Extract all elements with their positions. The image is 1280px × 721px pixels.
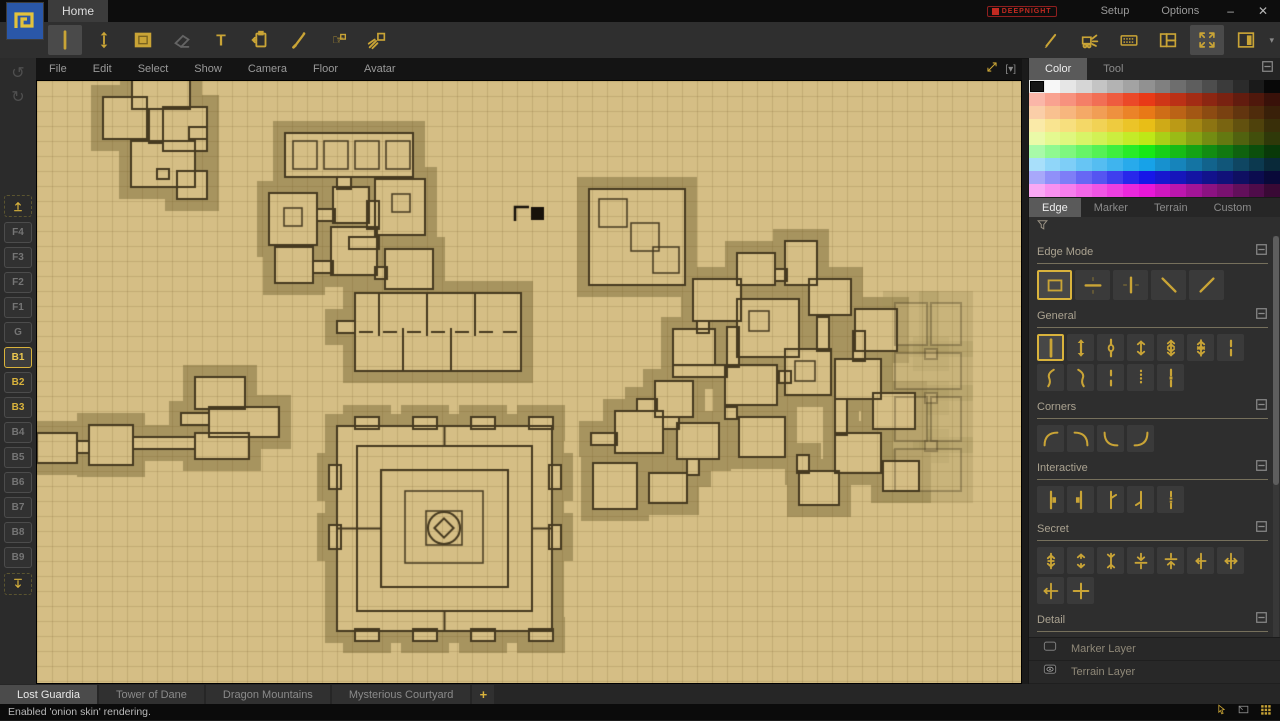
palette-swatch[interactable] (1170, 93, 1186, 106)
add-floor-above-button[interactable] (4, 195, 32, 217)
palette-swatch[interactable] (1170, 145, 1186, 158)
palette-swatch[interactable] (1186, 106, 1202, 119)
filter-row (1029, 217, 1280, 236)
palette-swatch[interactable] (1076, 106, 1092, 119)
collapse-section-icon[interactable] (1255, 611, 1268, 629)
collapse-panel-icon[interactable] (1261, 60, 1274, 78)
wall-tool[interactable] (48, 25, 82, 55)
palette-swatch[interactable] (1107, 93, 1123, 106)
menu-camera[interactable]: Camera (235, 63, 300, 75)
palette-swatch[interactable] (1107, 184, 1123, 197)
category-tabs: EdgeMarkerTerrainCustom (1029, 197, 1280, 217)
secret-cross-button[interactable] (1067, 577, 1094, 604)
palette-swatch[interactable] (1139, 106, 1155, 119)
palette-swatch[interactable] (1233, 80, 1249, 93)
section-buttons (1037, 270, 1268, 300)
palette-swatch[interactable] (1092, 119, 1108, 132)
palette-swatch[interactable] (1170, 171, 1186, 184)
palette-swatch[interactable] (1139, 158, 1155, 171)
arc-top-left-button[interactable] (1037, 425, 1064, 452)
shortcuts-tool[interactable] (1112, 25, 1146, 55)
palette-swatch[interactable] (1029, 119, 1045, 132)
marker-layer-toggle[interactable]: Marker Layer (1029, 638, 1280, 661)
section-corners: Corners (1037, 398, 1272, 452)
secret-arrows-both-line-icon (1220, 550, 1242, 572)
tab-color[interactable]: Color (1029, 58, 1087, 80)
palette-swatch[interactable] (1233, 132, 1249, 145)
palette-swatch[interactable] (1092, 80, 1108, 93)
palette-swatch[interactable] (1264, 106, 1280, 119)
floor-button-f1[interactable]: F1 (4, 297, 32, 318)
palette-swatch[interactable] (1060, 158, 1076, 171)
palette-swatch[interactable] (1123, 119, 1139, 132)
palette-swatch[interactable] (1045, 80, 1061, 93)
palette-swatch[interactable] (1123, 184, 1139, 197)
collapse-section-icon[interactable] (1255, 307, 1268, 325)
palette-swatch[interactable] (1264, 184, 1280, 197)
tab-terrain[interactable]: Terrain (1141, 198, 1201, 217)
palette-swatch[interactable] (1264, 145, 1280, 158)
door-double-button[interactable] (1157, 486, 1184, 513)
palette-swatch[interactable] (1155, 119, 1171, 132)
wall-double-arrows-icon (1160, 337, 1182, 359)
palette-swatch[interactable] (1155, 132, 1171, 145)
palette-swatch[interactable] (1060, 106, 1076, 119)
palette-swatch[interactable] (1139, 93, 1155, 106)
palette-swatch[interactable] (1202, 119, 1218, 132)
palette-swatch[interactable] (1233, 93, 1249, 106)
floor-button-b4[interactable]: B4 (4, 422, 32, 443)
palette-swatch[interactable] (1233, 171, 1249, 184)
vline-icon (54, 29, 76, 51)
expand-view-icon[interactable] (985, 60, 999, 79)
palette-swatch[interactable] (1249, 106, 1265, 119)
palette-swatch[interactable] (1107, 80, 1123, 93)
palette-swatch[interactable] (1155, 80, 1171, 93)
side-panel-tool[interactable] (1229, 25, 1263, 55)
undo-icon[interactable]: ↺ (11, 66, 24, 82)
palette-swatch[interactable] (1092, 171, 1108, 184)
palette-swatch[interactable] (1233, 158, 1249, 171)
eraser-tool[interactable] (165, 25, 199, 55)
palette-swatch[interactable] (1107, 132, 1123, 145)
palette-swatch[interactable] (1092, 158, 1108, 171)
palette-swatch[interactable] (1233, 184, 1249, 197)
collapse-section-icon[interactable] (1255, 459, 1268, 477)
palette-swatch[interactable] (1139, 119, 1155, 132)
door-left-icon (1070, 489, 1092, 511)
mode-diagonal-forward-icon (1196, 274, 1218, 296)
palette-swatch[interactable] (1186, 158, 1202, 171)
palette-swatch[interactable] (1092, 145, 1108, 158)
secret-arrows-vertical-button[interactable] (1037, 547, 1064, 574)
filter-icon[interactable] (1035, 217, 1050, 237)
floor-button-b1[interactable]: B1 (4, 347, 32, 368)
varrows-icon (93, 29, 115, 51)
secret-arrow-left-cross-icon (1040, 580, 1062, 602)
fullscreen-tool[interactable] (1190, 25, 1224, 55)
menu-floor[interactable]: Floor (300, 63, 351, 75)
secret-arrow-left-cross-button[interactable] (1037, 577, 1064, 604)
bulldozer-icon (1079, 29, 1101, 51)
maze-logo-icon (10, 6, 40, 36)
wall-dashed-short-button[interactable] (1097, 364, 1124, 391)
palette-swatch[interactable] (1249, 158, 1265, 171)
floor-button-f4[interactable]: F4 (4, 222, 32, 243)
map-tab-dragon-mountains[interactable]: Dragon Mountains (206, 685, 330, 704)
palette-swatch[interactable] (1249, 184, 1265, 197)
section-buttons (1037, 486, 1268, 513)
palette-swatch[interactable] (1107, 119, 1123, 132)
palette-swatch[interactable] (1060, 119, 1076, 132)
layer-label: Terrain Layer (1071, 666, 1135, 678)
section-header: Secret (1037, 520, 1268, 541)
fullscreen-icon (1196, 29, 1218, 51)
menu-file[interactable]: File (36, 63, 80, 75)
palette-swatch[interactable] (1217, 171, 1233, 184)
secret-arrows-left-line-icon (1190, 550, 1212, 572)
palette-swatch[interactable] (1170, 132, 1186, 145)
menu-edit[interactable]: Edit (80, 63, 125, 75)
stamp-tool[interactable] (243, 25, 277, 55)
panels-icon (1157, 29, 1179, 51)
door-swing-right-icon (1100, 489, 1122, 511)
section-edge-mode: Edge Mode (1037, 243, 1272, 300)
palette-swatch[interactable] (1202, 145, 1218, 158)
palette-swatch[interactable] (1186, 80, 1202, 93)
palette-swatch[interactable] (1202, 93, 1218, 106)
sidebar-icon (1235, 29, 1257, 51)
bulldoze-tool[interactable] (1073, 25, 1107, 55)
map-tab-bar: Lost GuardiaTower of DaneDragon Mountain… (0, 684, 1280, 704)
palette-swatch[interactable] (1202, 132, 1218, 145)
palette-swatch[interactable] (1060, 132, 1076, 145)
wall-dash-mid-button[interactable] (1217, 334, 1244, 361)
floor-sidebar: ↺ ↻ F4F3F2F1GB1B2B3B4B5B6B7B8B9 (0, 58, 36, 684)
palette-swatch[interactable] (1029, 184, 1045, 197)
palette-swatch[interactable] (1076, 184, 1092, 197)
brush-tool[interactable] (1034, 25, 1068, 55)
tab-marker[interactable]: Marker (1081, 198, 1141, 217)
palette-swatch[interactable] (1060, 145, 1076, 158)
floor-button-b5[interactable]: B5 (4, 447, 32, 468)
view-dropdown[interactable]: [▾] (1005, 64, 1016, 75)
minimize-button[interactable]: – (1215, 4, 1246, 18)
palette-swatch[interactable] (1264, 132, 1280, 145)
palette-swatch[interactable] (1139, 80, 1155, 93)
floor-button-b8[interactable]: B8 (4, 522, 32, 543)
mode-vertical-button[interactable] (1113, 270, 1148, 300)
toolbar-left-group: T☞ (48, 25, 394, 55)
palette-swatch[interactable] (1045, 119, 1061, 132)
palette-swatch[interactable] (1123, 106, 1139, 119)
arc-top-right-button[interactable] (1067, 425, 1094, 452)
floor-button-f3[interactable]: F3 (4, 247, 32, 268)
wall-door-button[interactable] (1097, 334, 1124, 361)
floor-button-b2[interactable]: B2 (4, 372, 32, 393)
palette-swatch[interactable] (1170, 158, 1186, 171)
section-header: Interactive (1037, 459, 1268, 480)
palette-swatch[interactable] (1107, 158, 1123, 171)
palette-swatch[interactable] (1139, 184, 1155, 197)
palette-swatch[interactable] (1045, 145, 1061, 158)
palette-swatch[interactable] (1139, 132, 1155, 145)
menu-avatar[interactable]: Avatar (351, 63, 409, 75)
menu-show[interactable]: Show (181, 63, 235, 75)
app-logo[interactable] (6, 2, 44, 40)
palette-swatch[interactable] (1060, 93, 1076, 106)
secret-arrows-both-line-button[interactable] (1217, 547, 1244, 574)
grid-status-icon[interactable] (1259, 703, 1272, 721)
mode-horizontal-icon (1082, 274, 1104, 296)
arc-bottom-left-icon (1100, 428, 1122, 450)
palette-swatch[interactable] (1233, 106, 1249, 119)
section-buttons (1037, 547, 1268, 604)
mode-diagonal-forward-button[interactable] (1189, 270, 1224, 300)
tab-tool[interactable]: Tool (1087, 58, 1139, 80)
section-header: Edge Mode (1037, 243, 1268, 264)
palette-swatch[interactable] (1045, 171, 1061, 184)
palette-swatch[interactable] (1029, 80, 1045, 93)
palette-swatch[interactable] (1249, 171, 1265, 184)
floor-button-g[interactable]: G (4, 322, 32, 343)
wall-arrows-button[interactable] (1127, 334, 1154, 361)
secret-arrows-up-line-button[interactable] (1157, 547, 1184, 574)
palette-swatch[interactable] (1060, 80, 1076, 93)
palette-swatch[interactable] (1186, 119, 1202, 132)
secret-arrows-down-line-icon (1130, 550, 1152, 572)
palette-swatch[interactable] (1107, 106, 1123, 119)
setup-menu[interactable]: Setup (1085, 5, 1146, 17)
floor-button-f2[interactable]: F2 (4, 272, 32, 293)
palette-swatch[interactable] (1249, 93, 1265, 106)
edge-arrows-tool[interactable] (87, 25, 121, 55)
door-right-icon (1040, 489, 1062, 511)
palette-swatch[interactable] (1202, 158, 1218, 171)
palette-swatch[interactable] (1155, 158, 1171, 171)
palette-swatch[interactable] (1076, 145, 1092, 158)
palette-swatch[interactable] (1264, 93, 1280, 106)
palette-swatch[interactable] (1186, 145, 1202, 158)
palette-swatch[interactable] (1264, 119, 1280, 132)
floor-button-b9[interactable]: B9 (4, 547, 32, 568)
map-tab-tower-of-dane[interactable]: Tower of Dane (99, 685, 204, 704)
redo-icon[interactable]: ↻ (11, 90, 24, 106)
palette-swatch[interactable] (1155, 93, 1171, 106)
toolbar-right-group: ▾ (1034, 25, 1274, 55)
palette-swatch[interactable] (1233, 145, 1249, 158)
palette-swatch[interactable] (1123, 171, 1139, 184)
wall-dash-square-button[interactable] (1157, 364, 1184, 391)
light-rays-tool[interactable] (360, 25, 394, 55)
terrain-layer-toggle[interactable]: Terrain Layer (1029, 661, 1280, 684)
palette-swatch[interactable] (1045, 106, 1061, 119)
palette-swatch[interactable] (1155, 106, 1171, 119)
section-title: Edge Mode (1037, 246, 1093, 258)
palette-swatch[interactable] (1092, 184, 1108, 197)
palette-swatch[interactable] (1076, 132, 1092, 145)
palette-swatch[interactable] (1107, 171, 1123, 184)
palette-swatch[interactable] (1076, 93, 1092, 106)
arc-top-left-icon (1040, 428, 1062, 450)
palette-swatch[interactable] (1029, 145, 1045, 158)
options-menu[interactable]: Options (1145, 5, 1215, 17)
palette-swatch[interactable] (1076, 80, 1092, 93)
tab-edge[interactable]: Edge (1029, 198, 1081, 217)
palette-swatch[interactable] (1217, 184, 1233, 197)
palette-swatch[interactable] (1076, 171, 1092, 184)
palette-swatch[interactable] (1217, 80, 1233, 93)
palette-swatch[interactable] (1249, 145, 1265, 158)
palette-swatch[interactable] (1029, 93, 1045, 106)
palette-swatch[interactable] (1217, 119, 1233, 132)
close-button[interactable]: ✕ (1246, 4, 1280, 18)
palette-swatch[interactable] (1217, 158, 1233, 171)
rays-icon (366, 29, 388, 51)
palette-swatch[interactable] (1123, 93, 1139, 106)
wall-button[interactable] (1037, 334, 1064, 361)
secret-arrows-inward-button[interactable] (1097, 547, 1124, 574)
add-floor-below-button[interactable] (4, 573, 32, 595)
palette-swatch[interactable] (1170, 184, 1186, 197)
palette-swatch[interactable] (1029, 171, 1045, 184)
map-tab-mysterious-courtyard[interactable]: Mysterious Courtyard (332, 685, 471, 704)
map-canvas[interactable] (37, 81, 1021, 683)
palette-swatch[interactable] (1045, 184, 1061, 197)
toolbar-dropdown-arrow[interactable]: ▾ (1269, 35, 1274, 46)
palette-swatch[interactable] (1092, 93, 1108, 106)
pen-tool[interactable] (282, 25, 316, 55)
arc-bottom-right-button[interactable] (1127, 425, 1154, 452)
scrollbar-thumb[interactable] (1273, 236, 1279, 485)
palette-swatch[interactable] (1076, 158, 1092, 171)
palette-swatch[interactable] (1029, 158, 1045, 171)
scrollbar[interactable] (1273, 236, 1279, 637)
add-map-tab-button[interactable]: + (472, 685, 494, 704)
palette-swatch[interactable] (1029, 106, 1045, 119)
palette-swatch[interactable] (1264, 80, 1280, 93)
palette-swatch[interactable] (1264, 171, 1280, 184)
mode-horizontal-button[interactable] (1075, 270, 1110, 300)
color-palette (1029, 80, 1280, 197)
wall-triple-arrows-button[interactable] (1187, 334, 1214, 361)
palette-swatch[interactable] (1233, 119, 1249, 132)
door-swing-right-button[interactable] (1097, 486, 1124, 513)
palette-swatch[interactable] (1186, 184, 1202, 197)
collapse-section-icon[interactable] (1255, 243, 1268, 261)
section-title: Secret (1037, 523, 1069, 535)
palette-swatch[interactable] (1170, 119, 1186, 132)
palette-swatch[interactable] (1123, 158, 1139, 171)
secret-arrows-down-line-button[interactable] (1127, 547, 1154, 574)
pointer-status-icon[interactable] (1215, 703, 1228, 721)
palette-swatch[interactable] (1107, 145, 1123, 158)
text-tool[interactable]: T (204, 25, 238, 55)
wall-dotted-button[interactable] (1127, 364, 1154, 391)
palette-swatch[interactable] (1139, 145, 1155, 158)
layer-status-icon[interactable] (1237, 703, 1250, 721)
palette-swatch[interactable] (1186, 171, 1202, 184)
wall-end-arrows-icon (1070, 337, 1092, 359)
floor-button-b3[interactable]: B3 (4, 397, 32, 418)
palette-swatch[interactable] (1202, 106, 1218, 119)
palette-swatch[interactable] (1029, 132, 1045, 145)
palette-swatch[interactable] (1045, 132, 1061, 145)
palette-swatch[interactable] (1249, 80, 1265, 93)
palette-swatch[interactable] (1202, 80, 1218, 93)
main-toolbar: T☞ ▾ (0, 22, 1280, 59)
palette-swatch[interactable] (1155, 171, 1171, 184)
palette-swatch[interactable] (1123, 145, 1139, 158)
palette-swatch[interactable] (1155, 184, 1171, 197)
palette-swatch[interactable] (1249, 132, 1265, 145)
avatar-hand-tool[interactable]: ☞ (321, 25, 355, 55)
home-tab[interactable]: Home (48, 0, 108, 22)
curve-hook-left-button[interactable] (1067, 364, 1094, 391)
palette-swatch[interactable] (1186, 132, 1202, 145)
arc-bottom-left-button[interactable] (1097, 425, 1124, 452)
palette-swatch[interactable] (1217, 93, 1233, 106)
palette-swatch[interactable] (1139, 171, 1155, 184)
door-swing-left-button[interactable] (1127, 486, 1154, 513)
door-left-button[interactable] (1067, 486, 1094, 513)
palette-swatch[interactable] (1060, 171, 1076, 184)
palette-swatch[interactable] (1264, 158, 1280, 171)
palette-swatch[interactable] (1249, 119, 1265, 132)
mode-rect-button[interactable] (1037, 270, 1072, 300)
palette-swatch[interactable] (1202, 171, 1218, 184)
right-panel: ColorTool EdgeMarkerTerrainCustom Edge M… (1028, 58, 1280, 684)
palette-swatch[interactable] (1170, 106, 1186, 119)
map-tab-lost-guardia[interactable]: Lost Guardia (0, 685, 97, 704)
tab-custom[interactable]: Custom (1201, 198, 1265, 217)
secret-dashed-arrows-button[interactable] (1067, 547, 1094, 574)
palette-swatch[interactable] (1155, 145, 1171, 158)
layout-panels-tool[interactable] (1151, 25, 1185, 55)
wall-end-arrows-button[interactable] (1067, 334, 1094, 361)
palette-swatch[interactable] (1217, 145, 1233, 158)
palette-swatch[interactable] (1045, 158, 1061, 171)
collapse-section-icon[interactable] (1255, 520, 1268, 538)
palette-swatch[interactable] (1092, 132, 1108, 145)
palette-swatch[interactable] (1092, 106, 1108, 119)
terrain-fill-tool[interactable] (126, 25, 160, 55)
door-right-button[interactable] (1037, 486, 1064, 513)
menu-select[interactable]: Select (125, 63, 182, 75)
floor-button-b6[interactable]: B6 (4, 472, 32, 493)
collapse-section-icon[interactable] (1255, 398, 1268, 416)
palette-swatch[interactable] (1186, 93, 1202, 106)
palette-swatch[interactable] (1060, 184, 1076, 197)
palette-swatch[interactable] (1123, 80, 1139, 93)
secret-arrows-left-line-button[interactable] (1187, 547, 1214, 574)
palette-swatch[interactable] (1217, 132, 1233, 145)
edge-sections: Edge ModeGeneralCornersInteractiveSecret… (1029, 236, 1272, 637)
palette-swatch[interactable] (1076, 119, 1092, 132)
palette-swatch[interactable] (1123, 132, 1139, 145)
mode-diagonal-back-button[interactable] (1151, 270, 1186, 300)
curve-hook-right-icon (1040, 367, 1062, 389)
palette-swatch[interactable] (1202, 184, 1218, 197)
wall-double-arrows-button[interactable] (1157, 334, 1184, 361)
titlebar: Home DEEPNIGHT Setup Options – ✕ (0, 0, 1280, 22)
palette-swatch[interactable] (1170, 80, 1186, 93)
color-tool-tabs: ColorTool (1029, 58, 1280, 80)
palette-swatch[interactable] (1045, 93, 1061, 106)
curve-hook-right-button[interactable] (1037, 364, 1064, 391)
floor-button-b7[interactable]: B7 (4, 497, 32, 518)
palette-swatch[interactable] (1217, 106, 1233, 119)
